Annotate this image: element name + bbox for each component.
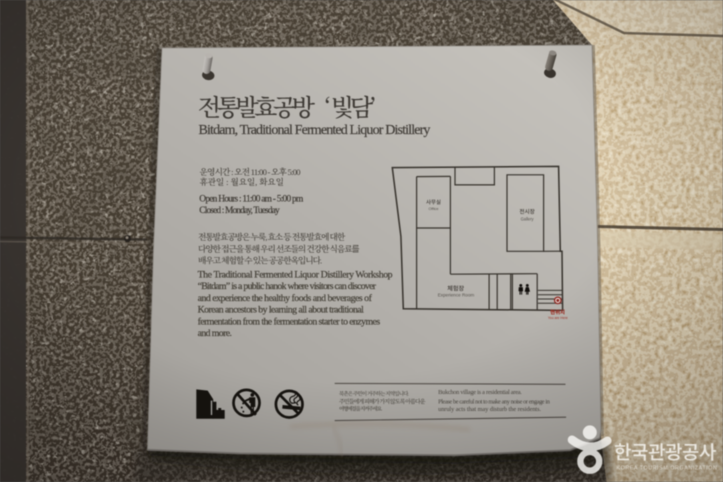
svg-text:한국관광공사: 한국관광공사 <box>614 438 717 465</box>
svg-text:KOREA TOURISM ORGANIZATION: KOREA TOURISM ORGANIZATION <box>617 466 718 472</box>
